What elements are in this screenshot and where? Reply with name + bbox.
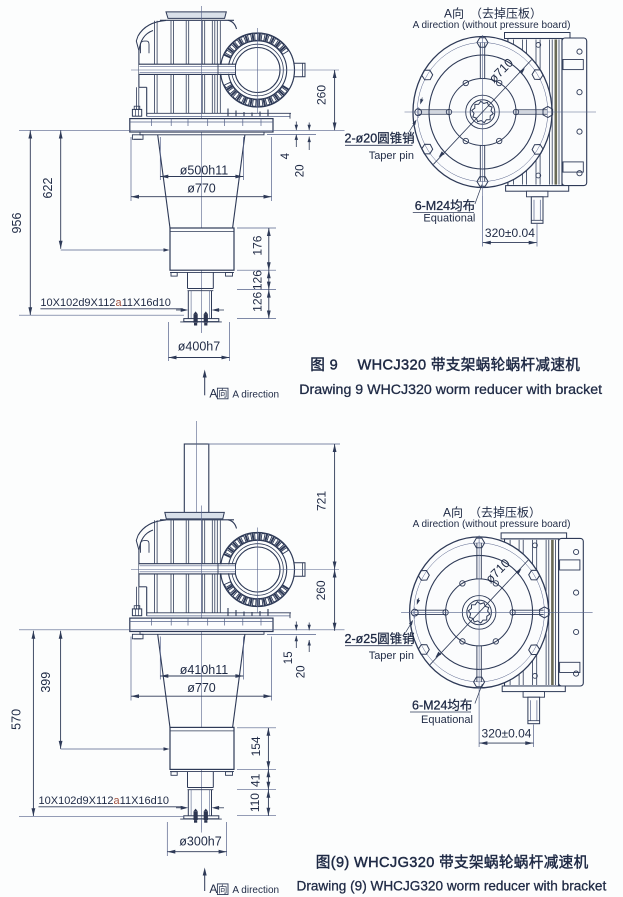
svg-text:176: 176: [250, 235, 264, 255]
svg-text:Taper pin: Taper pin: [369, 150, 414, 162]
svg-text:Drawing 9 WHCJ320 worm reduce: Drawing 9 WHCJ320 worm reducer with brac…: [299, 382, 602, 398]
svg-text:956: 956: [10, 213, 24, 234]
svg-text:320±0.04: 320±0.04: [482, 727, 532, 741]
svg-text:126: 126: [250, 270, 264, 290]
svg-text:ø500h11: ø500h11: [180, 164, 228, 178]
svg-text:10X102d9X112a11X16d10: 10X102d9X112a11X16d10: [40, 297, 171, 309]
svg-text:A direction (without pressure: A direction (without pressure board): [413, 20, 571, 31]
svg-text:A: A: [209, 386, 217, 400]
svg-text:260: 260: [314, 580, 328, 600]
svg-text:图(9) WHCJG320 带支架蜗轮蜗杆减速机: 图(9) WHCJG320 带支架蜗轮蜗杆减速机: [316, 854, 589, 871]
svg-text:ø400h7: ø400h7: [178, 340, 220, 354]
svg-text:Taper pin: Taper pin: [369, 650, 414, 662]
svg-text:A direction (without pressure: A direction (without pressure board): [413, 519, 571, 530]
svg-text:4: 4: [280, 152, 292, 159]
svg-text:向: 向: [218, 883, 227, 894]
svg-text:41: 41: [249, 773, 263, 787]
svg-text:2-ø25圆锥销: 2-ø25圆锥销: [345, 632, 415, 646]
svg-text:126: 126: [250, 291, 264, 311]
svg-text:ø770: ø770: [187, 681, 216, 695]
svg-text:320±0.04: 320±0.04: [485, 226, 535, 240]
svg-text:6-M24均布: 6-M24均布: [415, 199, 475, 213]
svg-text:A向 （去掉压板）: A向 （去掉压板）: [443, 505, 541, 520]
svg-text:ø300h7: ø300h7: [179, 835, 221, 849]
svg-text:399: 399: [39, 672, 53, 693]
svg-text:A direction: A direction: [232, 885, 279, 896]
svg-text:20: 20: [295, 165, 307, 178]
svg-text:图 9 WHCJ320 带支架蜗轮蜗杆减速机: 图 9 WHCJ320 带支架蜗轮蜗杆减速机: [310, 357, 580, 374]
svg-text:260: 260: [315, 85, 329, 105]
svg-text:2-ø20圆锥销: 2-ø20圆锥销: [345, 132, 415, 146]
svg-text:154: 154: [249, 736, 263, 756]
svg-text:721: 721: [315, 491, 329, 511]
svg-text:6-M24均布: 6-M24均布: [412, 699, 472, 713]
svg-text:20: 20: [295, 666, 307, 679]
svg-text:A向 （去掉压板）: A向 （去掉压板）: [444, 5, 542, 20]
svg-text:110: 110: [248, 793, 262, 812]
svg-text:A direction: A direction: [232, 389, 279, 400]
svg-text:Drawing (9) WHCJG320 worm red: Drawing (9) WHCJG320 worm reducer with b…: [297, 879, 607, 894]
svg-text:15: 15: [283, 651, 295, 664]
svg-text:622: 622: [41, 178, 55, 199]
svg-text:570: 570: [10, 709, 24, 730]
svg-text:ø770: ø770: [187, 182, 216, 196]
svg-text:Equational: Equational: [421, 714, 473, 726]
svg-text:Equational: Equational: [423, 213, 475, 225]
svg-text:向: 向: [218, 388, 227, 399]
svg-text:ø410h11: ø410h11: [180, 663, 228, 677]
svg-text:A: A: [209, 882, 217, 896]
svg-text:10X102d9X112a11X16d10: 10X102d9X112a11X16d10: [39, 795, 170, 807]
